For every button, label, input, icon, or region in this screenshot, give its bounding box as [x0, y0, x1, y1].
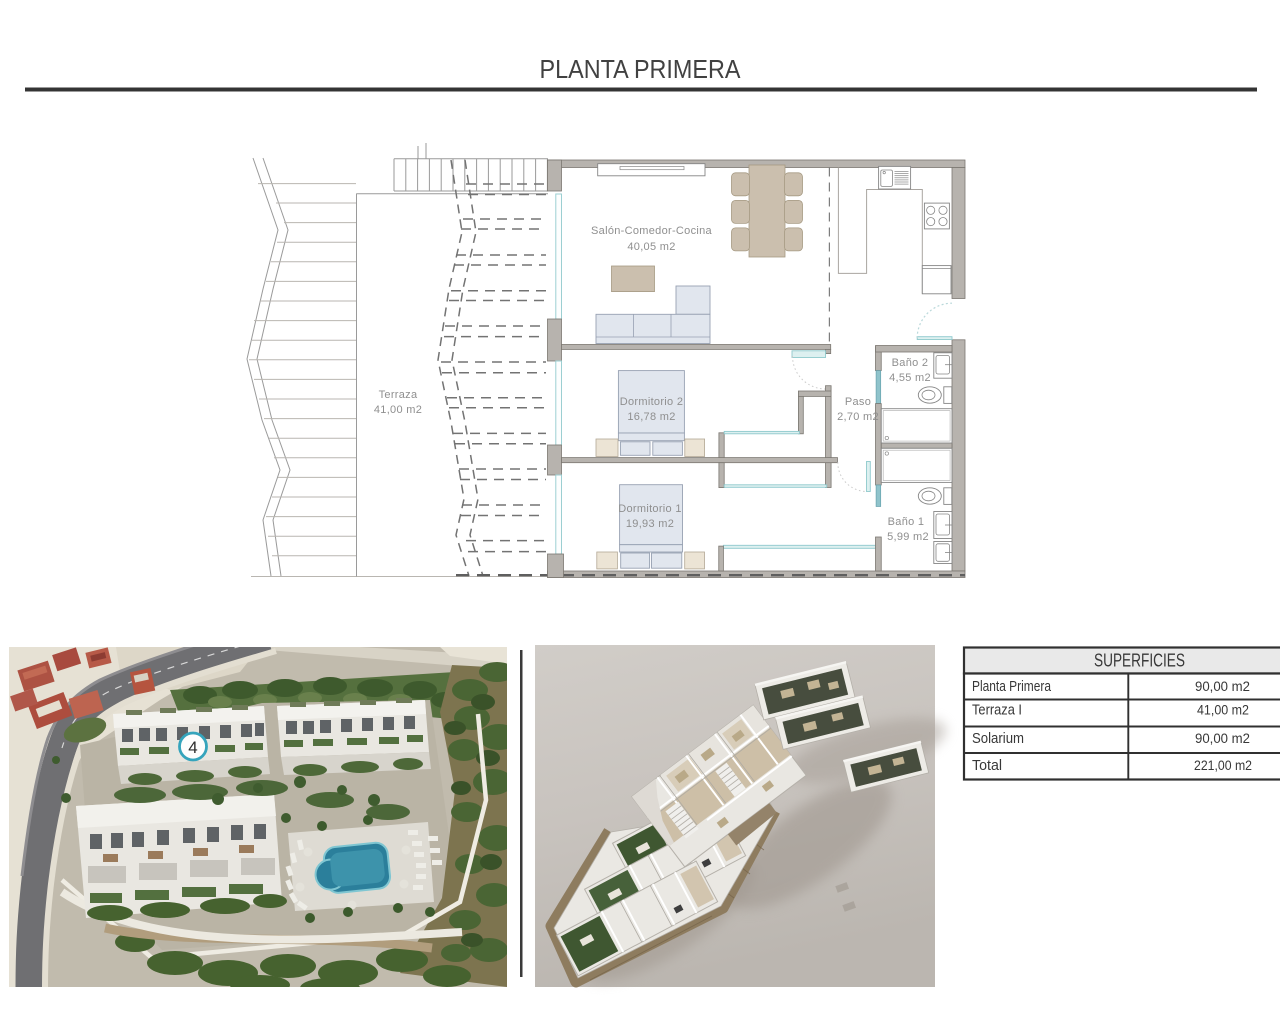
svg-text:Terraza: Terraza — [379, 389, 418, 401]
svg-text:Dormitorio 1: Dormitorio 1 — [618, 503, 682, 515]
svg-text:Solarium: Solarium — [972, 730, 1024, 747]
svg-text:2,70 m2: 2,70 m2 — [837, 411, 879, 423]
svg-text:221,00 m2: 221,00 m2 — [1194, 758, 1252, 773]
svg-text:Salón-Comedor-Cocina: Salón-Comedor-Cocina — [591, 225, 713, 237]
svg-text:16,78 m2: 16,78 m2 — [627, 411, 675, 423]
svg-text:41,00 m2: 41,00 m2 — [1197, 703, 1249, 718]
svg-text:Baño 2: Baño 2 — [892, 357, 929, 369]
svg-text:Total: Total — [972, 757, 1002, 774]
svg-text:Baño 1: Baño 1 — [888, 516, 925, 528]
svg-text:PLANTA PRIMERA: PLANTA PRIMERA — [540, 54, 742, 84]
svg-text:SUPERFICIES: SUPERFICIES — [1094, 650, 1185, 671]
svg-text:Dormitorio 2: Dormitorio 2 — [620, 396, 684, 408]
svg-text:41,00 m2: 41,00 m2 — [374, 404, 422, 416]
svg-text:19,93 m2: 19,93 m2 — [626, 518, 674, 530]
svg-text:5,99 m2: 5,99 m2 — [887, 531, 929, 543]
svg-text:90,00 m2: 90,00 m2 — [1195, 731, 1250, 746]
svg-text:4: 4 — [188, 738, 197, 757]
svg-text:Terraza I: Terraza I — [972, 702, 1022, 719]
svg-text:90,00 m2: 90,00 m2 — [1195, 679, 1250, 694]
svg-text:Paso: Paso — [845, 396, 871, 408]
svg-text:4,55 m2: 4,55 m2 — [889, 372, 931, 384]
svg-text:Planta Primera: Planta Primera — [972, 678, 1052, 695]
svg-text:40,05 m2: 40,05 m2 — [627, 241, 675, 253]
